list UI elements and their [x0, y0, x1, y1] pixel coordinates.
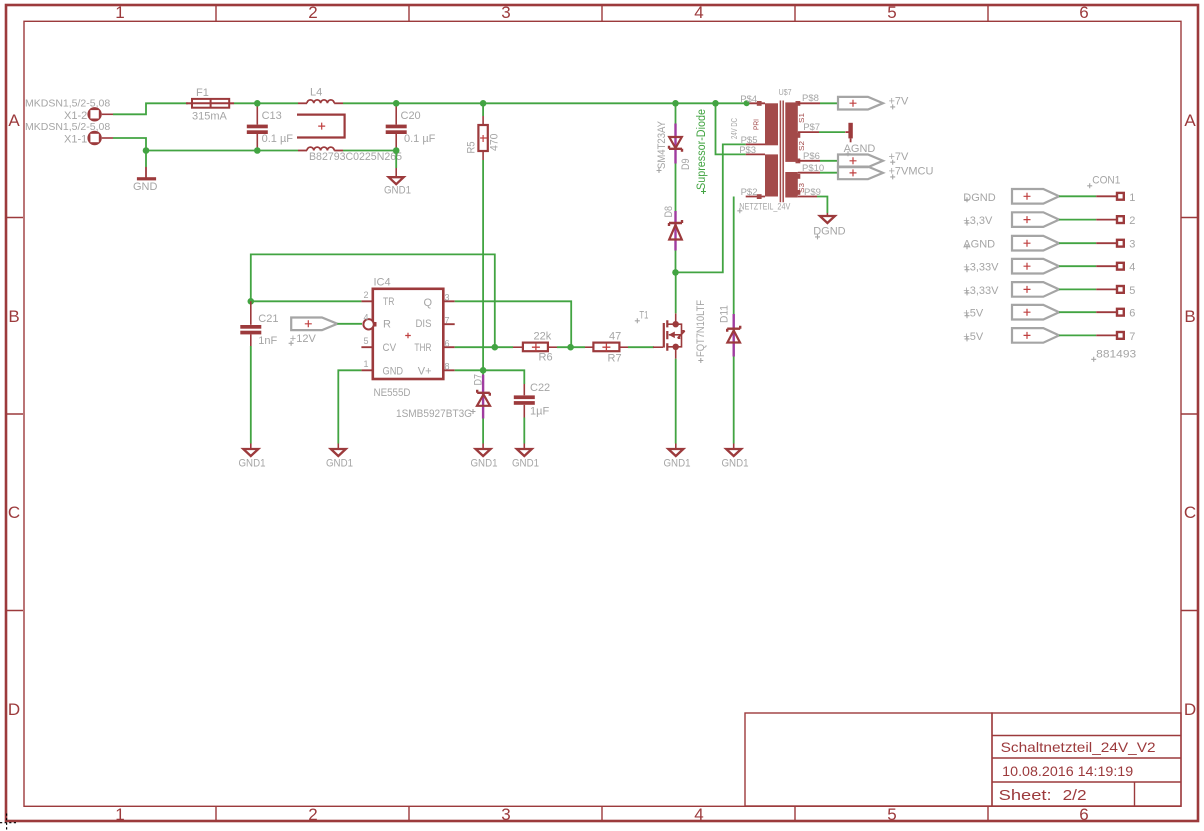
svg-text:GND: GND: [133, 181, 158, 193]
svg-text:GND1: GND1: [471, 458, 498, 470]
svg-text:R7: R7: [608, 353, 622, 365]
svg-text:F1: F1: [196, 87, 209, 99]
svg-text:5: 5: [363, 336, 368, 346]
svg-text:3: 3: [445, 293, 450, 303]
svg-text:4: 4: [363, 313, 368, 323]
svg-text:0.1 µF: 0.1 µF: [404, 133, 436, 145]
svg-text:315mA: 315mA: [192, 111, 228, 123]
svg-text:D: D: [8, 700, 20, 719]
svg-text:+12V: +12V: [290, 333, 317, 345]
svg-text:THR: THR: [414, 342, 431, 354]
svg-text:0.1 µF: 0.1 µF: [262, 133, 294, 145]
svg-text:+5V: +5V: [963, 331, 984, 343]
svg-text:3: 3: [501, 3, 510, 22]
svg-text:D9: D9: [680, 159, 692, 171]
svg-text:GND: GND: [383, 366, 404, 378]
svg-text:47: 47: [609, 331, 621, 343]
svg-text:+3,33V: +3,33V: [963, 285, 999, 297]
svg-text:Supressor-Diode: Supressor-Diode: [696, 109, 708, 190]
svg-text:1: 1: [115, 805, 124, 824]
svg-text:NETZTEIL_24V: NETZTEIL_24V: [739, 201, 790, 212]
svg-text:S1: S1: [797, 113, 806, 123]
svg-text:+7V: +7V: [889, 151, 910, 163]
svg-text:P$8: P$8: [802, 93, 819, 104]
svg-text:2: 2: [308, 3, 317, 22]
svg-text:8: 8: [445, 362, 450, 372]
svg-text:1SMB5927BT3G: 1SMB5927BT3G: [396, 408, 472, 420]
svg-text:TR: TR: [383, 296, 395, 308]
svg-text:D: D: [1184, 700, 1196, 719]
svg-text:4: 4: [1129, 262, 1135, 274]
svg-text:C22: C22: [530, 382, 550, 394]
svg-text:1: 1: [363, 359, 368, 369]
svg-text:5: 5: [1129, 285, 1135, 297]
svg-text:+7V: +7V: [889, 96, 910, 108]
svg-text:D7: D7: [473, 374, 485, 386]
svg-text:1: 1: [1129, 192, 1135, 204]
svg-text:5: 5: [887, 3, 896, 22]
svg-text:1: 1: [115, 3, 124, 22]
svg-text:3: 3: [501, 805, 510, 824]
svg-text:4: 4: [694, 3, 703, 22]
svg-text:5: 5: [887, 805, 896, 824]
svg-text:X1-1: X1-1: [64, 134, 87, 146]
svg-text:B: B: [1184, 307, 1195, 326]
svg-text:GND1: GND1: [239, 458, 266, 470]
svg-text:3: 3: [1129, 239, 1135, 251]
svg-text:10.08.2016 14:19:19: 10.08.2016 14:19:19: [1002, 763, 1133, 779]
svg-text:22k: 22k: [534, 331, 552, 343]
svg-text:2: 2: [1129, 215, 1135, 227]
svg-text:+3,33V: +3,33V: [963, 262, 999, 274]
svg-text:R5: R5: [466, 142, 478, 154]
svg-text:2: 2: [363, 290, 368, 300]
svg-text:1nF: 1nF: [258, 335, 277, 347]
svg-text:Q: Q: [423, 297, 432, 309]
svg-text:470: 470: [489, 134, 501, 152]
svg-text:CV: CV: [383, 342, 397, 354]
svg-text:C13: C13: [262, 110, 282, 122]
svg-text:A: A: [8, 111, 20, 130]
svg-text:1µF: 1µF: [530, 406, 549, 418]
svg-text:GND1: GND1: [326, 458, 353, 470]
svg-text:A: A: [1184, 111, 1196, 130]
svg-text:Schaltnetzteil_24V_V2: Schaltnetzteil_24V_V2: [1001, 739, 1156, 755]
svg-text:SM4T23AY: SM4T23AY: [656, 120, 668, 169]
svg-text:L4: L4: [310, 87, 322, 99]
svg-text:MKDSN1,5/2-5,08: MKDSN1,5/2-5,08: [25, 121, 110, 133]
svg-text:GND1: GND1: [384, 185, 411, 197]
svg-text:P$2: P$2: [741, 187, 758, 198]
svg-text:U$7: U$7: [779, 87, 792, 97]
svg-text:S3: S3: [797, 183, 806, 193]
svg-text:B: B: [8, 307, 19, 326]
svg-text:IC4: IC4: [374, 277, 391, 289]
svg-text:2: 2: [308, 805, 317, 824]
svg-text:6: 6: [445, 339, 450, 349]
svg-text:7: 7: [445, 316, 450, 326]
svg-text:P$4: P$4: [740, 94, 757, 105]
svg-text:B82793C0225N265: B82793C0225N265: [309, 151, 402, 163]
svg-text:P$3: P$3: [739, 145, 756, 156]
svg-text:DGND: DGND: [963, 192, 995, 204]
svg-text:7: 7: [1129, 331, 1135, 343]
svg-text:GND1: GND1: [722, 458, 749, 470]
svg-text:DIS: DIS: [416, 318, 432, 330]
svg-text:MKDSN1,5/2-5,08: MKDSN1,5/2-5,08: [25, 98, 110, 110]
svg-text:D11: D11: [719, 305, 731, 323]
svg-text:C20: C20: [401, 110, 421, 122]
svg-text:DGND: DGND: [813, 226, 845, 238]
svg-text:C: C: [1184, 503, 1196, 522]
svg-text:+3,3V: +3,3V: [963, 215, 993, 227]
svg-text:S2: S2: [797, 141, 806, 151]
svg-text:T1: T1: [639, 310, 648, 322]
svg-text:24V DC: 24V DC: [730, 118, 739, 139]
svg-text:R: R: [383, 319, 391, 331]
svg-text:C: C: [8, 503, 20, 522]
svg-text:P$6: P$6: [803, 151, 820, 162]
svg-text:R6: R6: [539, 352, 553, 364]
svg-text:+7VMCU: +7VMCU: [889, 166, 934, 178]
svg-text:FQT7N10LTF: FQT7N10LTF: [695, 300, 707, 357]
svg-text:Sheet:: Sheet:: [999, 788, 1052, 804]
svg-text:6: 6: [1079, 805, 1088, 824]
svg-text:GND1: GND1: [512, 458, 539, 470]
svg-text:GND1: GND1: [664, 458, 691, 470]
svg-text:4: 4: [694, 805, 703, 824]
svg-text:6: 6: [1079, 3, 1088, 22]
svg-text:2/2: 2/2: [1063, 788, 1087, 804]
svg-text:AGND: AGND: [963, 239, 995, 251]
svg-text:PRI: PRI: [752, 119, 761, 130]
svg-text:NE555D: NE555D: [374, 387, 411, 399]
svg-text:CON1: CON1: [1092, 175, 1120, 187]
svg-text:C21: C21: [258, 313, 278, 325]
svg-text:6: 6: [1129, 308, 1135, 320]
svg-text:V+: V+: [418, 366, 432, 378]
svg-text:+5V: +5V: [963, 308, 984, 320]
svg-text:881493: 881493: [1096, 349, 1136, 361]
svg-text:D8: D8: [663, 206, 675, 218]
